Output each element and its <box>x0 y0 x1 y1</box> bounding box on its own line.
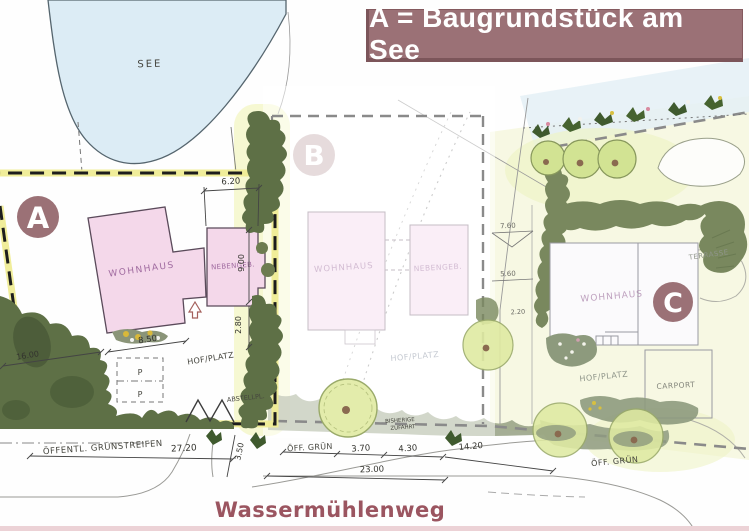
tree-b <box>319 379 377 437</box>
label-a-gruenstreifen: ÖFFENTL. GRÜNSTREIFEN <box>43 438 164 457</box>
fade-overlay-b <box>263 86 495 438</box>
label-parking-1: P <box>138 368 143 377</box>
dim-b-total: 23.00 <box>360 465 385 476</box>
badge-a: A <box>17 196 59 238</box>
label-parking-2: P <box>138 390 143 399</box>
dim-b-2: 4.30 <box>398 443 418 454</box>
dim-b-1: 3.70 <box>351 443 371 454</box>
dim-c-3: 2.20 <box>510 308 525 317</box>
svg-text:C: C <box>663 288 683 319</box>
entrance-arrow-icon <box>189 302 201 318</box>
trees-c-top <box>531 140 636 178</box>
site-plan-page: SEE WOHNHAUS NEBENGEB. HOF/PLATZ B <box>0 0 749 531</box>
dim-a-front: 8.50 <box>138 334 158 347</box>
site-plan-canvas: SEE WOHNHAUS NEBENGEB. HOF/PLATZ B <box>0 0 749 531</box>
dim-c-2: 5.60 <box>500 270 516 279</box>
dim-a-lower: 2.80 <box>234 316 243 334</box>
dim-a-gruen-width: 27.20 <box>171 443 198 454</box>
dim-a-top: 6.20 <box>221 177 240 188</box>
label-a-hof-platz: HOF/PLATZ <box>187 350 235 366</box>
title-banner: A = Baugrundstück am See <box>366 9 743 62</box>
dim-a-flare: 3.50 <box>233 442 246 461</box>
dim-a-side: 9.00 <box>237 254 246 272</box>
lake-label: SEE <box>137 59 162 71</box>
dim-b-right: 14.20 <box>458 441 483 453</box>
badge-c: C <box>653 282 693 322</box>
title-banner-text: A = Baugrundstück am See <box>369 2 742 66</box>
svg-text:A: A <box>27 201 50 235</box>
dim-c-1: 7.60 <box>500 222 516 231</box>
street-name: Wassermühlenweg <box>215 498 446 522</box>
label-b-gruen: ÖFF. GRÜN <box>287 441 333 453</box>
